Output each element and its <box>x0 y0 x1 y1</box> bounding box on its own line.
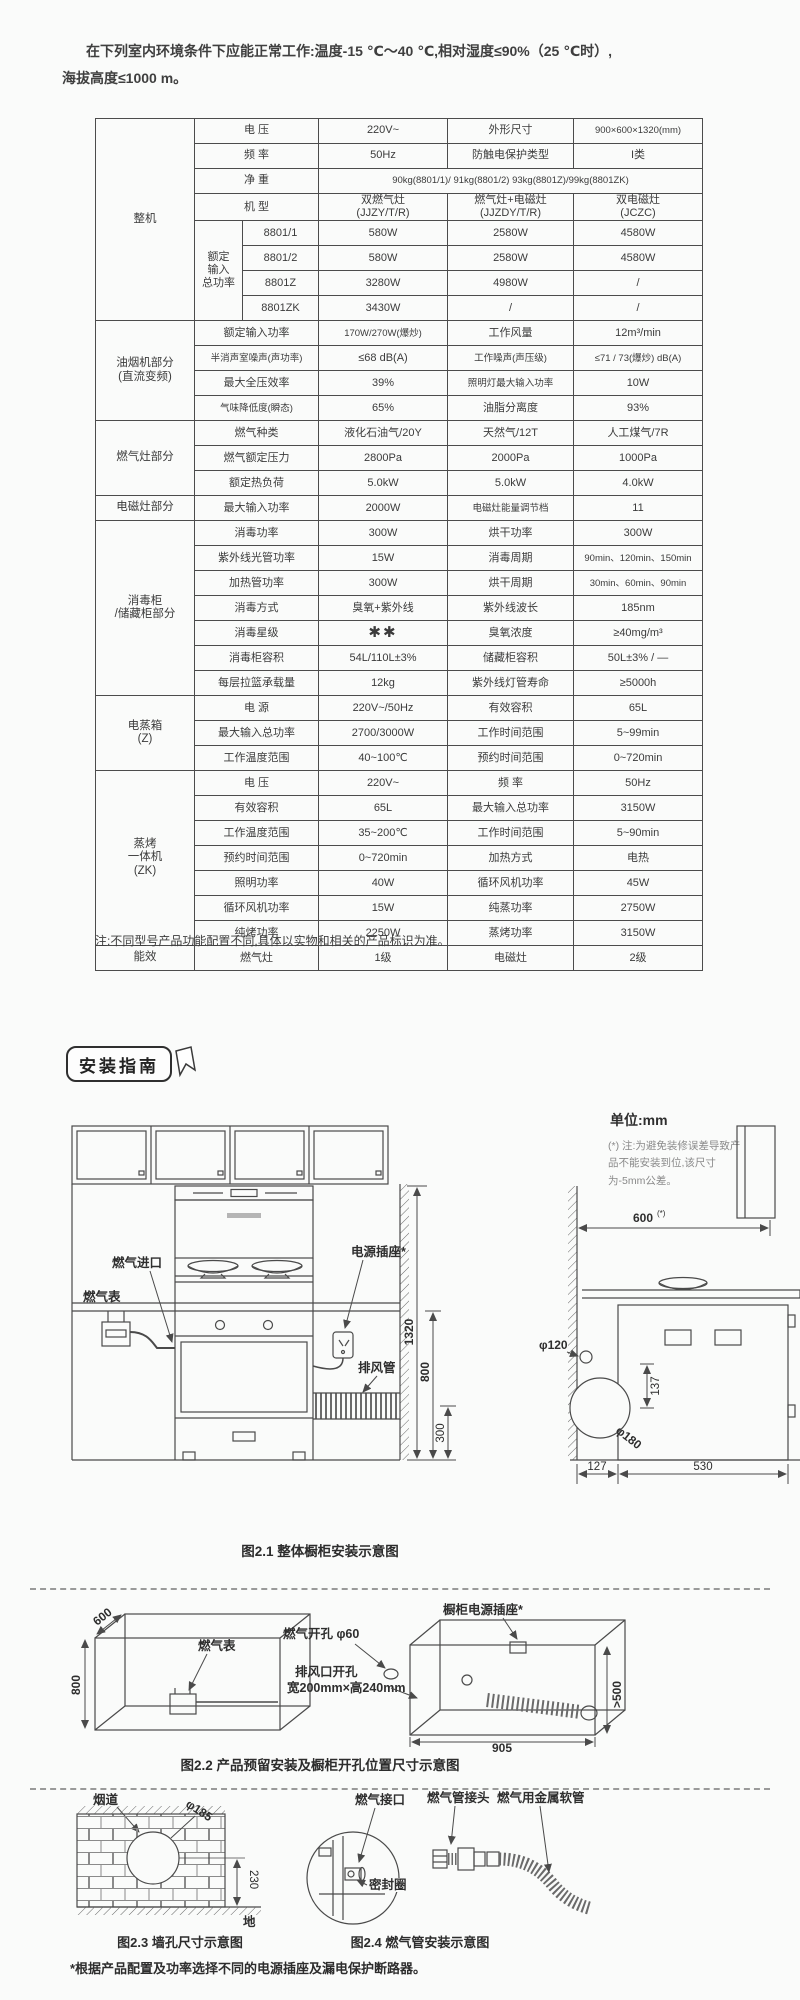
spec-cell: 循环风机功率 <box>195 896 319 921</box>
ground-label: 地 <box>243 1914 256 1929</box>
spec-cell: 3280W <box>319 271 448 296</box>
spec-cell: 4580W <box>574 246 703 271</box>
spec-cell: 8801/1 <box>243 221 319 246</box>
spec-cell: 8801Z <box>243 271 319 296</box>
spec-cell: 0~720min <box>574 746 703 771</box>
spec-cell: 40W <box>319 871 448 896</box>
spec-cell: 最大输入总功率 <box>448 796 574 821</box>
spec-cell: 净 重 <box>195 169 319 194</box>
spec-cell: 0~720min <box>319 846 448 871</box>
spec-cell: 机 型 <box>195 194 319 221</box>
cabinet-socket-label: 橱柜电源插座* <box>443 1602 523 1617</box>
spec-cell: 2800Pa <box>319 446 448 471</box>
gas-hole-label: 燃气开孔 φ60 <box>283 1626 359 1641</box>
spec-cell: 循环风机功率 <box>448 871 574 896</box>
cabinet-socket-leader <box>503 1618 517 1639</box>
spec-cell: 加热方式 <box>448 846 574 871</box>
spec-cell: 电 源 <box>195 696 319 721</box>
spec-cell: 频 率 <box>448 771 574 796</box>
spec-cell: 工作温度范围 <box>195 821 319 846</box>
spec-cell: 有效容积 <box>195 796 319 821</box>
power-socket-leader <box>345 1260 363 1328</box>
dim-137: 137 <box>640 1364 662 1408</box>
pipe-joint-label: 燃气管接头 <box>427 1790 490 1805</box>
fig22-caption: 图2.2 产品预留安装及橱柜开孔位置尺寸示意图 <box>100 1754 540 1774</box>
dim-1320-label: 1320 <box>402 1318 416 1345</box>
power-socket-drawing <box>313 1332 353 1369</box>
dim-gt500: >500 <box>607 1647 624 1733</box>
spec-cell: 300W <box>319 521 448 546</box>
dim-530-label: 530 <box>693 1461 712 1473</box>
spec-cell: 1级 <box>319 946 448 971</box>
exhaust-duct-label: 排风管 <box>358 1360 396 1375</box>
spec-cell: 燃气种类 <box>195 421 319 446</box>
dim-137-label: 137 <box>650 1376 662 1395</box>
dim-800-label: 800 <box>418 1362 432 1382</box>
spec-cell: 40~100℃ <box>319 746 448 771</box>
spec-cell: 预约时间范围 <box>195 846 319 871</box>
spec-cell: 每层拉篮承载量 <box>195 671 319 696</box>
gas-hole-leader <box>355 1644 385 1668</box>
fig24-drawing: 燃气接口 燃气管接头 燃气用金属软管 密封圈 <box>285 1790 605 1930</box>
spec-cell: 30min、60min、90min <box>574 571 703 596</box>
spec-cell: 天然气/12T <box>448 421 574 446</box>
right-cabinet-box <box>384 1620 625 1735</box>
spec-cell: 防触电保护类型 <box>448 144 574 169</box>
spec-cell: 紫外线波长 <box>448 596 574 621</box>
dim-120-label: φ120 <box>539 1338 568 1352</box>
spec-cell: 额定输入功率 <box>195 321 319 346</box>
spec-cell: 工作时间范围 <box>448 721 574 746</box>
spec-cell: 蒸烤功率 <box>448 921 574 946</box>
spec-cell: 液化石油气/20Y <box>319 421 448 446</box>
spec-cell: 电 压 <box>195 771 319 796</box>
fig24-caption: 图2.4 燃气管安装示意图 <box>300 1932 540 1951</box>
spec-cell: 15W <box>319 896 448 921</box>
spec-cell: 65L <box>319 796 448 821</box>
spec-cell: 油脂分离度 <box>448 396 574 421</box>
spec-cell: 93% <box>574 396 703 421</box>
dim-600-label: 600 <box>633 1211 653 1225</box>
spec-cell: 2750W <box>574 896 703 921</box>
pipe-joint-drawing <box>433 1848 485 1870</box>
operating-conditions-text: 在下列室内环境条件下应能正常工作:温度-15 ℃～40 ℃,相对湿度≤90%（2… <box>62 38 767 91</box>
bottom-note: *根据产品配置及功率选择不同的电源插座及漏电保护断路器。 <box>70 1958 426 1977</box>
spec-cell: 2000Pa <box>448 446 574 471</box>
spec-cell: 消毒星级 <box>195 621 319 646</box>
spec-cell: 烘干周期 <box>448 571 574 596</box>
spec-cell: 臭氧浓度 <box>448 621 574 646</box>
spec-cell: 蒸烤 一体机 (ZK) <box>96 771 195 946</box>
spec-cell: 油烟机部分 (直流变频) <box>96 321 195 421</box>
spec-cell: 220V~/50Hz <box>319 696 448 721</box>
vent-hole-label-1: 排风口开孔 <box>295 1664 358 1679</box>
spec-cell: 12kg <box>319 671 448 696</box>
spec-cell: 45W <box>574 871 703 896</box>
spec-cell: ≥40mg/m³ <box>574 621 703 646</box>
manual-page: 在下列室内环境条件下应能正常工作:温度-15 ℃～40 ℃,相对湿度≤90%（2… <box>0 0 800 2000</box>
spec-cell: 580W <box>319 246 448 271</box>
spec-cell: 电蒸箱 (Z) <box>96 696 195 771</box>
dim-gt500-label: >500 <box>610 1681 624 1708</box>
spec-cell: 半消声室噪声(声功率) <box>195 346 319 371</box>
dim-905: 905 <box>410 1737 595 1755</box>
gas-meter-label-22: 燃气表 <box>198 1638 236 1653</box>
power-socket-label: 电源插座* <box>351 1244 406 1259</box>
spec-cell: ≤71 / 73(爆炒) dB(A) <box>574 346 703 371</box>
spec-cell: 加热管功率 <box>195 571 319 596</box>
dashed-divider <box>30 1588 770 1590</box>
spec-cell: 65% <box>319 396 448 421</box>
spec-cell: 有效容积 <box>448 696 574 721</box>
spec-cell: 35~200℃ <box>319 821 448 846</box>
gas-inlet-label: 燃气进口 <box>112 1255 162 1270</box>
stove-unit-front <box>175 1186 313 1460</box>
spec-cell: 臭氧+紫外线 <box>319 596 448 621</box>
spec-cell: 5.0kW <box>448 471 574 496</box>
spec-cell: 消毒柜容积 <box>195 646 319 671</box>
spec-cell: ≤68 dB(A) <box>319 346 448 371</box>
left-cabinet-box <box>95 1614 310 1730</box>
control-knob <box>264 1321 273 1330</box>
fig21-caption: 图2.1 整体橱柜安装示意图 <box>140 1540 500 1560</box>
spec-cell: 5~99min <box>574 721 703 746</box>
side-view <box>568 1126 800 1460</box>
spec-cell: 烘干功率 <box>448 521 574 546</box>
spec-cell: 10W <box>574 371 703 396</box>
dim-300: 300 <box>435 1406 456 1460</box>
dim-127-label: 127 <box>587 1461 606 1473</box>
spec-cell: 燃气灶部分 <box>96 421 195 496</box>
dim-800-iso: 800 <box>69 1640 85 1728</box>
spec-cell: 电磁灶能量调节档 <box>448 496 574 521</box>
gas-port-leader <box>359 1808 375 1862</box>
spec-cell: 储藏柜容积 <box>448 646 574 671</box>
spec-cell: / <box>574 271 703 296</box>
spec-cell: 8801/2 <box>243 246 319 271</box>
spec-cell: 65L <box>574 696 703 721</box>
wall-cabinets <box>72 1126 388 1184</box>
fig22-drawing: 600 800 燃气表 燃气开孔 φ60 排风口开孔 宽200mm×高240mm… <box>55 1600 755 1752</box>
spec-cell: 能效 <box>96 946 195 971</box>
metal-hose-leader <box>540 1806 549 1872</box>
spec-cell: 工作时间范围 <box>448 821 574 846</box>
spec-cell: 3430W <box>319 296 448 321</box>
spec-cell: 消毒方式 <box>195 596 319 621</box>
fig23-caption: 图2.3 墙孔尺寸示意图 <box>55 1932 305 1951</box>
table-note: 注:不同型号产品功能配置不同,具体以实物和相关的产品标识为准。 <box>95 932 450 949</box>
spec-cell: 15W <box>319 546 448 571</box>
spec-cell: 2700/3000W <box>319 721 448 746</box>
spec-cell: 额定热负荷 <box>195 471 319 496</box>
spec-table: 整机电 压220V~外形尺寸900×600×1320(mm)频 率50Hz防触电… <box>95 118 703 971</box>
pipe-joint-leader <box>451 1806 455 1844</box>
vent-hole-label-2: 宽200mm×高240mm <box>286 1680 405 1695</box>
dim-905-label: 905 <box>492 1741 512 1755</box>
spec-cell: 频 率 <box>195 144 319 169</box>
spec-cell: 185nm <box>574 596 703 621</box>
spec-cell: 纯蒸功率 <box>448 896 574 921</box>
install-guide-badge-label: 安装指南 <box>79 1052 159 1077</box>
spec-cell: 11 <box>574 496 703 521</box>
spec-cell: 紫外线灯管寿命 <box>448 671 574 696</box>
spec-cell: I类 <box>574 144 703 169</box>
spec-cell: 12m³/min <box>574 321 703 346</box>
spec-cell: 90min、120min、150min <box>574 546 703 571</box>
spec-cell: 2级 <box>574 946 703 971</box>
spec-cell: 最大全压效率 <box>195 371 319 396</box>
spec-cell: ✱✱ <box>319 621 448 646</box>
dim-800-iso-label: 800 <box>69 1675 83 1695</box>
spec-cell: 人工煤气/7R <box>574 421 703 446</box>
spec-cell: 4580W <box>574 221 703 246</box>
spec-cell: 双燃气灶 (JJZY/T/R) <box>319 194 448 221</box>
spec-cell: 电 压 <box>195 119 319 144</box>
spec-cell: 电热 <box>574 846 703 871</box>
ribbon-icon <box>172 1046 198 1080</box>
spec-cell: 燃气灶 <box>195 946 319 971</box>
spec-cell: 3150W <box>574 921 703 946</box>
spec-cell: 220V~ <box>319 771 448 796</box>
spec-cell: 300W <box>319 571 448 596</box>
dim-127-530: 127 530 <box>577 1461 788 1484</box>
spec-cell: 50Hz <box>319 144 448 169</box>
spec-cell: 最大输入总功率 <box>195 721 319 746</box>
spec-cell: 双电磁灶 (JCZC) <box>574 194 703 221</box>
spec-cell: 消毒周期 <box>448 546 574 571</box>
spec-cell: 电磁灶 <box>448 946 574 971</box>
burner-pans <box>188 1261 302 1279</box>
gas-meter-label: 燃气表 <box>83 1289 121 1304</box>
exhaust-duct-leader <box>363 1376 377 1392</box>
spec-cell: 紫外线光管功率 <box>195 546 319 571</box>
fig23-drawing: 烟道 φ185 230 地 <box>65 1792 300 1930</box>
spec-cell: 照明功率 <box>195 871 319 896</box>
control-knob <box>216 1321 225 1330</box>
spec-cell: 3150W <box>574 796 703 821</box>
intro-line-2: 海拔高度≤1000 m。 <box>62 65 767 92</box>
spec-cell: 50Hz <box>574 771 703 796</box>
dim-300-label: 300 <box>435 1423 447 1442</box>
spec-cell: 燃气灶+电磁灶 (JJZDY/T/R) <box>448 194 574 221</box>
spec-cell: 额定 输入 总功率 <box>195 221 243 321</box>
gas-meter-leader-22 <box>189 1654 207 1690</box>
exhaust-duct-drawing <box>313 1393 400 1419</box>
spec-cell: 2580W <box>448 246 574 271</box>
fig21-drawing: 燃气表 燃气进口 电源插座* 排风管 1320 800 <box>55 1120 800 1492</box>
spec-table-body: 整机电 压220V~外形尺寸900×600×1320(mm)频 率50Hz防触电… <box>96 119 703 971</box>
spec-cell: / <box>574 296 703 321</box>
spec-cell: 300W <box>574 521 703 546</box>
spec-cell: 4.0kW <box>574 471 703 496</box>
spec-cell: 2580W <box>448 221 574 246</box>
spec-cell: 39% <box>319 371 448 396</box>
spec-cell: 900×600×1320(mm) <box>574 119 703 144</box>
gas-inlet-leader <box>150 1271 172 1342</box>
flue-label: 烟道 <box>93 1792 119 1807</box>
intro-line-1: 在下列室内环境条件下应能正常工作:温度-15 ℃～40 ℃,相对湿度≤90%（2… <box>62 38 767 65</box>
spec-cell: 消毒功率 <box>195 521 319 546</box>
spec-cell: 电磁灶部分 <box>96 496 195 521</box>
gas-port-label: 燃气接口 <box>355 1792 405 1807</box>
spec-cell: 外形尺寸 <box>448 119 574 144</box>
spec-cell: 工作风量 <box>448 321 574 346</box>
spec-cell: 8801ZK <box>243 296 319 321</box>
spec-cell: 90kg(8801/1)/ 91kg(8801/2) 93kg(8801Z)/9… <box>319 169 703 194</box>
spec-cell: 50L±3% / — <box>574 646 703 671</box>
spec-cell: 燃气额定压力 <box>195 446 319 471</box>
seal-label: 密封圈 <box>368 1877 407 1892</box>
spec-cell: 5.0kW <box>319 471 448 496</box>
brick-wall <box>77 1806 225 1907</box>
spec-cell: 2000W <box>319 496 448 521</box>
spec-cell: 4980W <box>448 271 574 296</box>
spec-cell: 5~90min <box>574 821 703 846</box>
spec-cell: 预约时间范围 <box>448 746 574 771</box>
ground <box>77 1907 261 1915</box>
spec-cell: 54L/110L±3% <box>319 646 448 671</box>
spec-cell: 整机 <box>96 119 195 321</box>
spec-cell: 气味降低度(瞬态) <box>195 396 319 421</box>
spec-cell: 工作温度范围 <box>195 746 319 771</box>
install-guide-badge: 安装指南 <box>66 1046 172 1082</box>
spec-cell: 1000Pa <box>574 446 703 471</box>
metal-hose-label: 燃气用金属软管 <box>497 1790 585 1805</box>
spec-cell: ≥5000h <box>574 671 703 696</box>
spec-cell: 580W <box>319 221 448 246</box>
dim-230-label: 230 <box>247 1870 259 1889</box>
spec-cell: 220V~ <box>319 119 448 144</box>
spec-cell: 最大输入功率 <box>195 496 319 521</box>
spec-cell: 170W/270W(爆炒) <box>319 321 448 346</box>
metal-hose-drawing <box>487 1852 589 1908</box>
spec-cell: 消毒柜 /储藏柜部分 <box>96 521 195 696</box>
spec-cell: / <box>448 296 574 321</box>
spec-cell: 照明灯最大输入功率 <box>448 371 574 396</box>
dim-600-sup: (*) <box>657 1209 666 1218</box>
spec-cell: 工作噪声(声压级) <box>448 346 574 371</box>
